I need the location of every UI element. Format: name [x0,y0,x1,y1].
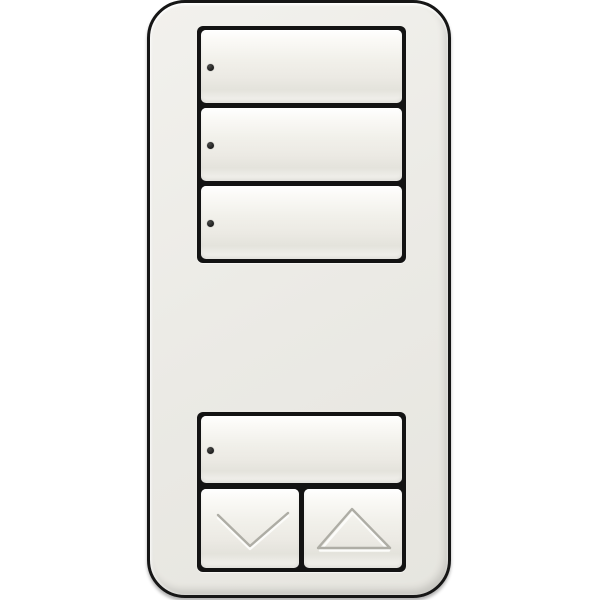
product-photo-stage [0,0,600,600]
led-indicator-dot [207,220,214,227]
scene-button-3[interactable] [201,186,402,259]
lower-button[interactable] [201,489,299,568]
wall-keypad-device [147,0,451,598]
scene-button-2[interactable] [201,108,402,181]
scene-button-group [197,26,406,263]
triangle-up-icon [304,489,402,568]
scene-button-main[interactable] [201,416,402,483]
raise-button[interactable] [304,489,402,568]
led-indicator-dot [207,447,214,454]
raise-lower-row [201,489,402,568]
led-indicator-dot [207,64,214,71]
rocker-button-group [197,412,406,572]
chevron-down-icon [201,489,299,568]
scene-button-1[interactable] [201,30,402,103]
led-indicator-dot [207,142,214,149]
